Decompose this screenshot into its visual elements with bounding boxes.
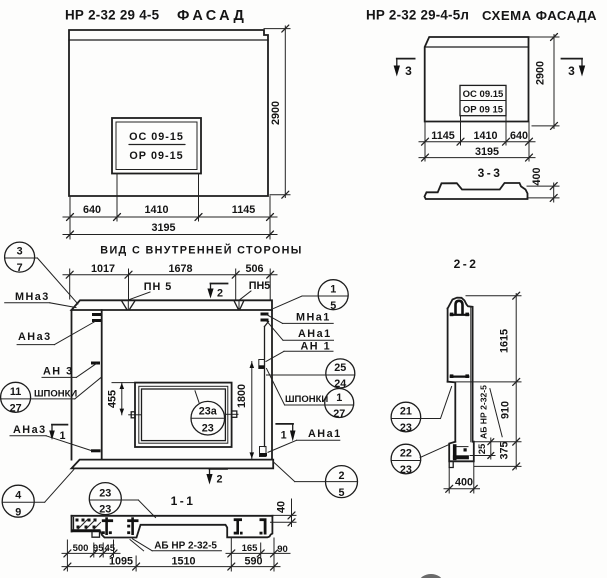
svg-text:ОР 09-15: ОР 09-15 bbox=[129, 150, 183, 162]
svg-text:ФАСАД: ФАСАД bbox=[177, 8, 247, 24]
svg-text:3: 3 bbox=[568, 64, 575, 78]
svg-text:1410: 1410 bbox=[144, 204, 168, 216]
svg-text:1: 1 bbox=[330, 284, 336, 296]
svg-text:3: 3 bbox=[405, 64, 412, 78]
svg-text:23: 23 bbox=[99, 488, 111, 500]
svg-text:ОС 09.15: ОС 09.15 bbox=[463, 89, 504, 100]
svg-text:455: 455 bbox=[107, 390, 119, 408]
svg-text:23а: 23а bbox=[199, 406, 218, 418]
svg-text:МНа3: МНа3 bbox=[15, 291, 50, 303]
svg-text:НР 2-32 29-4-5л: НР 2-32 29-4-5л bbox=[366, 8, 469, 23]
svg-text:1615: 1615 bbox=[499, 329, 511, 353]
svg-text:2900: 2900 bbox=[535, 61, 547, 85]
svg-text:2: 2 bbox=[338, 470, 344, 482]
svg-text:3195: 3195 bbox=[151, 222, 175, 234]
svg-text:21: 21 bbox=[400, 406, 412, 418]
svg-text:640: 640 bbox=[510, 130, 528, 142]
svg-text:1095: 1095 bbox=[109, 556, 133, 568]
svg-text:1-1: 1-1 bbox=[171, 494, 196, 508]
svg-text:ПН5: ПН5 bbox=[249, 280, 271, 292]
svg-text:4: 4 bbox=[15, 490, 21, 502]
svg-text:ВИД С ВНУТРЕННЕЙ СТОРОНЫ: ВИД С ВНУТРЕННЕЙ СТОРОНЫ bbox=[100, 244, 302, 257]
svg-text:НР 2-32 29 4-5: НР 2-32 29 4-5 bbox=[65, 8, 160, 23]
svg-text:ШПОНКИ: ШПОНКИ bbox=[34, 389, 77, 400]
svg-text:506: 506 bbox=[245, 263, 263, 275]
svg-text:5: 5 bbox=[330, 300, 336, 312]
svg-text:500: 500 bbox=[73, 543, 89, 554]
svg-text:165: 165 bbox=[242, 543, 259, 554]
svg-text:2900: 2900 bbox=[270, 101, 282, 125]
svg-text:АНа1: АНа1 bbox=[298, 328, 332, 340]
svg-text:23: 23 bbox=[202, 423, 214, 435]
svg-text:ОР 09 15: ОР 09 15 bbox=[463, 105, 504, 116]
svg-text:25: 25 bbox=[477, 443, 488, 454]
svg-text:590: 590 bbox=[244, 556, 262, 568]
svg-text:АНа3: АНа3 bbox=[13, 424, 47, 436]
svg-text:1: 1 bbox=[59, 430, 65, 442]
svg-text:СХЕМА ФАСАДА: СХЕМА ФАСАДА bbox=[482, 8, 597, 23]
svg-text:7: 7 bbox=[17, 262, 23, 274]
svg-text:1800: 1800 bbox=[236, 384, 248, 408]
svg-text:9: 9 bbox=[15, 507, 21, 519]
svg-text:23: 23 bbox=[400, 464, 412, 476]
svg-text:400: 400 bbox=[531, 167, 543, 185]
svg-text:910: 910 bbox=[500, 401, 512, 419]
svg-text:2: 2 bbox=[216, 474, 222, 486]
svg-text:640: 640 bbox=[83, 204, 101, 216]
svg-text:5: 5 bbox=[338, 487, 344, 499]
svg-text:АНа3: АНа3 bbox=[18, 331, 52, 343]
svg-text:45: 45 bbox=[105, 543, 116, 554]
svg-text:1410: 1410 bbox=[473, 130, 497, 142]
svg-text:АБ НР 2-32-5: АБ НР 2-32-5 bbox=[479, 385, 489, 439]
svg-text:3-3: 3-3 bbox=[478, 166, 503, 180]
svg-text:АБ НР 2-32-5: АБ НР 2-32-5 bbox=[154, 541, 217, 552]
svg-text:АНа1: АНа1 bbox=[308, 428, 342, 440]
svg-text:ПН 5: ПН 5 bbox=[144, 281, 173, 293]
svg-text:40: 40 bbox=[276, 501, 288, 513]
svg-text:95: 95 bbox=[93, 543, 104, 554]
svg-text:1: 1 bbox=[336, 392, 342, 404]
svg-text:1: 1 bbox=[281, 430, 287, 442]
svg-text:23: 23 bbox=[400, 422, 412, 434]
svg-text:27: 27 bbox=[10, 403, 22, 415]
svg-text:АН 1: АН 1 bbox=[301, 341, 332, 353]
svg-text:23: 23 bbox=[99, 504, 111, 516]
svg-text:25: 25 bbox=[334, 362, 346, 374]
svg-text:ОС 09-15: ОС 09-15 bbox=[129, 131, 184, 143]
svg-text:МНа1: МНа1 bbox=[296, 312, 331, 324]
svg-text:2: 2 bbox=[217, 288, 223, 300]
svg-text:АН 3: АН 3 bbox=[43, 366, 74, 378]
svg-text:90: 90 bbox=[277, 544, 288, 555]
svg-text:3: 3 bbox=[17, 246, 23, 258]
svg-text:11: 11 bbox=[10, 386, 21, 398]
svg-text:375: 375 bbox=[499, 441, 511, 459]
svg-text:2-2: 2-2 bbox=[454, 257, 479, 271]
svg-text:1510: 1510 bbox=[171, 556, 195, 568]
svg-text:1678: 1678 bbox=[168, 263, 192, 275]
svg-text:1017: 1017 bbox=[91, 263, 115, 275]
svg-text:1145: 1145 bbox=[232, 204, 255, 216]
svg-text:400: 400 bbox=[455, 477, 473, 489]
svg-text:27: 27 bbox=[333, 408, 345, 420]
svg-text:ШПОНКИ: ШПОНКИ bbox=[285, 394, 328, 405]
svg-text:3195: 3195 bbox=[475, 146, 499, 158]
svg-text:22: 22 bbox=[400, 448, 412, 460]
svg-text:1145: 1145 bbox=[431, 130, 454, 142]
